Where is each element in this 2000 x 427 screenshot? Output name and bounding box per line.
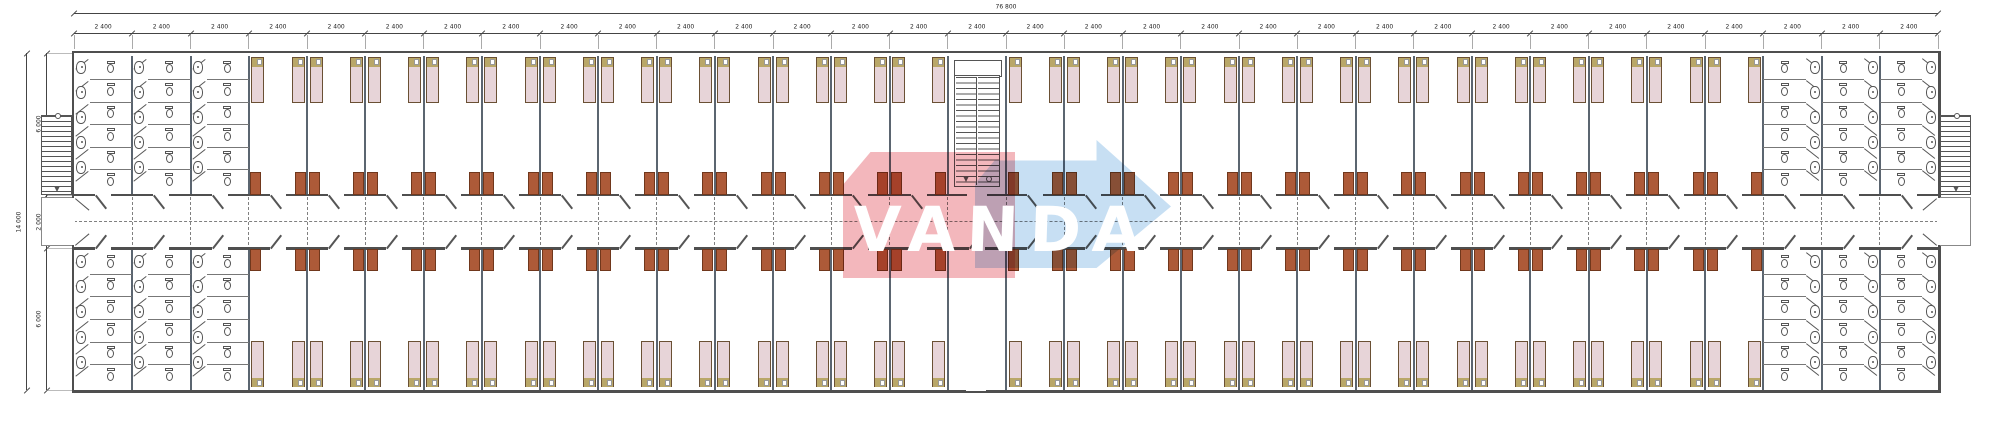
toilet-tank bbox=[1781, 255, 1789, 258]
room-door-leaf bbox=[386, 195, 398, 209]
toilet-tank bbox=[165, 128, 173, 131]
bed bbox=[1631, 57, 1644, 103]
stall-partition bbox=[148, 102, 190, 103]
stall-partition bbox=[90, 342, 132, 343]
sink bbox=[76, 61, 86, 74]
bed-pillow bbox=[1579, 59, 1584, 65]
toilet-tank bbox=[1897, 323, 1905, 326]
bed-headboard bbox=[584, 58, 595, 67]
dim-extension bbox=[1763, 35, 1764, 49]
bed-pillow bbox=[1539, 380, 1544, 386]
room-door-leaf bbox=[1901, 195, 1913, 209]
bed bbox=[543, 341, 556, 387]
stall-partition bbox=[1822, 124, 1864, 125]
sink-drain bbox=[139, 91, 141, 93]
bed-headboard bbox=[311, 58, 322, 67]
bed-headboard bbox=[1359, 58, 1370, 67]
toilet bbox=[165, 368, 174, 381]
bed bbox=[251, 341, 264, 387]
sink bbox=[76, 331, 86, 344]
stair-circle bbox=[1954, 113, 1960, 119]
wardrobe bbox=[1357, 172, 1368, 195]
toilet-tank bbox=[223, 173, 231, 176]
sink bbox=[1810, 86, 1820, 99]
sink-drain bbox=[1814, 66, 1816, 68]
wardrobe bbox=[1052, 249, 1063, 272]
sink bbox=[193, 331, 203, 344]
wardrobe bbox=[658, 172, 669, 195]
sink-drain bbox=[1814, 361, 1816, 363]
dim-extension bbox=[656, 35, 657, 49]
bed bbox=[1690, 341, 1703, 387]
stall-partition bbox=[1763, 124, 1805, 125]
toilet-bowl bbox=[1840, 281, 1847, 290]
sink-drain bbox=[197, 66, 199, 68]
stall-partition bbox=[90, 79, 132, 80]
stall-partition bbox=[1880, 342, 1922, 343]
bed-pillow bbox=[1055, 59, 1060, 65]
toilet-tank bbox=[223, 368, 231, 371]
sink-drain bbox=[197, 141, 199, 143]
stall-partition bbox=[148, 319, 190, 320]
entry-door-gap bbox=[1937, 198, 1941, 245]
toilet bbox=[1897, 61, 1906, 74]
toilet-bowl bbox=[224, 372, 231, 381]
toilet-bowl bbox=[1840, 327, 1847, 336]
stall-door bbox=[75, 321, 88, 332]
bed-headboard bbox=[1010, 378, 1021, 387]
toilet bbox=[1780, 173, 1789, 186]
bed bbox=[1416, 341, 1429, 387]
bed-pillow bbox=[1189, 380, 1194, 386]
toilet bbox=[1780, 83, 1789, 96]
stall-partition bbox=[207, 79, 249, 80]
bed-headboard bbox=[1301, 378, 1312, 387]
dim-label-module: 2 400 bbox=[968, 24, 985, 31]
toilet bbox=[106, 61, 115, 74]
toilet-tank bbox=[107, 368, 115, 371]
wardrobe bbox=[702, 249, 713, 272]
bed-pillow bbox=[1230, 380, 1235, 386]
toilet-tank bbox=[107, 300, 115, 303]
room-door-leaf bbox=[619, 195, 631, 209]
toilet-bowl bbox=[166, 87, 173, 96]
sink-drain bbox=[1931, 166, 1933, 168]
wardrobe bbox=[542, 172, 553, 195]
entry-door-leaf bbox=[75, 233, 89, 245]
wardrobe bbox=[367, 172, 378, 195]
bed-headboard bbox=[1341, 378, 1352, 387]
sink bbox=[1868, 61, 1878, 74]
wardrobe bbox=[644, 172, 655, 195]
bed-headboard bbox=[1534, 378, 1545, 387]
toilet bbox=[165, 128, 174, 141]
wardrobe bbox=[1124, 249, 1135, 272]
stall-partition bbox=[1763, 169, 1805, 170]
toilet-bowl bbox=[224, 327, 231, 336]
room-door-leaf bbox=[561, 195, 573, 209]
stall-door bbox=[1864, 125, 1877, 136]
bed bbox=[583, 57, 596, 103]
sink-drain bbox=[197, 91, 199, 93]
wardrobe bbox=[1285, 172, 1296, 195]
dim-label-module: 2 400 bbox=[328, 24, 345, 31]
corridor-module-dash bbox=[1297, 197, 1298, 245]
dim-extension bbox=[1064, 35, 1065, 49]
sink-drain bbox=[139, 141, 141, 143]
toilet bbox=[106, 83, 115, 96]
sink-drain bbox=[1931, 141, 1933, 143]
bed bbox=[1515, 57, 1528, 103]
toilet bbox=[223, 151, 232, 164]
toilet bbox=[106, 106, 115, 119]
wardrobe bbox=[295, 249, 306, 272]
room-door-gap bbox=[1318, 247, 1334, 251]
bed bbox=[1242, 341, 1255, 387]
toilet-bowl bbox=[1781, 281, 1788, 290]
dim-extension bbox=[1180, 35, 1181, 49]
bed-pillow bbox=[1346, 380, 1351, 386]
bed-headboard bbox=[1050, 378, 1061, 387]
bed-pillow bbox=[298, 59, 303, 65]
bed-pillow bbox=[432, 59, 437, 65]
wardrobe bbox=[1518, 249, 1529, 272]
sink bbox=[1810, 136, 1820, 149]
floor-plan-canvas: 76 8002 4002 4002 4002 4002 4002 4002 40… bbox=[0, 0, 2000, 427]
toilet-bowl bbox=[1840, 132, 1847, 141]
bed bbox=[717, 57, 730, 103]
wardrobe bbox=[1168, 172, 1179, 195]
dim-extension bbox=[831, 35, 832, 49]
stall-partition bbox=[90, 124, 132, 125]
sink bbox=[1868, 86, 1878, 99]
toilet bbox=[165, 106, 174, 119]
bed-pillow bbox=[549, 380, 554, 386]
stall-partition bbox=[207, 296, 249, 297]
corridor-module-dash bbox=[1646, 197, 1647, 245]
bed bbox=[408, 341, 421, 387]
wardrobe bbox=[1008, 172, 1019, 195]
toilet-bowl bbox=[1840, 349, 1847, 358]
dim-label-total-width: 76 800 bbox=[996, 4, 1017, 11]
bed-pillow bbox=[1131, 59, 1136, 65]
bed-headboard bbox=[369, 58, 380, 67]
bed-headboard bbox=[1225, 378, 1236, 387]
dim-extension bbox=[48, 390, 72, 391]
exterior-stair bbox=[1940, 115, 1971, 195]
stall-partition bbox=[90, 102, 132, 103]
bed-headboard bbox=[1417, 378, 1428, 387]
room-door-leaf bbox=[95, 195, 107, 209]
bed-headboard bbox=[1166, 378, 1177, 387]
bed bbox=[1224, 341, 1237, 387]
bed-pillow bbox=[1597, 380, 1602, 386]
bed-headboard bbox=[602, 58, 613, 67]
bed-headboard bbox=[293, 378, 304, 387]
bed-headboard bbox=[467, 58, 478, 67]
sink-drain bbox=[1872, 166, 1874, 168]
bed bbox=[1300, 341, 1313, 387]
bed-headboard bbox=[1050, 58, 1061, 67]
room-door-leaf bbox=[736, 195, 748, 209]
wardrobe bbox=[1124, 172, 1135, 195]
dim-extension bbox=[1821, 35, 1822, 49]
bed-pillow bbox=[647, 59, 652, 65]
wardrobe bbox=[1707, 249, 1718, 272]
wardrobe bbox=[877, 172, 888, 195]
toilet bbox=[223, 61, 232, 74]
stall-partition bbox=[1763, 274, 1805, 275]
bed bbox=[699, 57, 712, 103]
bed-headboard bbox=[1184, 378, 1195, 387]
stall-partition bbox=[1763, 102, 1805, 103]
toilet bbox=[165, 346, 174, 359]
bed-headboard bbox=[1691, 378, 1702, 387]
sink-drain bbox=[139, 166, 141, 168]
bed-headboard bbox=[1301, 58, 1312, 67]
bed bbox=[1165, 341, 1178, 387]
wardrobe bbox=[309, 249, 320, 272]
room-door-gap bbox=[967, 193, 987, 197]
bed-headboard bbox=[526, 378, 537, 387]
sink bbox=[1810, 61, 1820, 74]
sink-drain bbox=[1931, 311, 1933, 313]
dim-label-module: 2 400 bbox=[1609, 24, 1626, 31]
sink bbox=[134, 136, 144, 149]
sink bbox=[134, 61, 144, 74]
bed bbox=[641, 341, 654, 387]
sink-drain bbox=[197, 336, 199, 338]
bed bbox=[1125, 57, 1138, 103]
wardrobe bbox=[250, 249, 261, 272]
bed-pillow bbox=[1754, 59, 1759, 65]
toilet bbox=[106, 346, 115, 359]
toilet bbox=[1839, 83, 1848, 96]
bed bbox=[1457, 341, 1470, 387]
sink bbox=[134, 280, 144, 293]
toilet-tank bbox=[165, 323, 173, 326]
wardrobe bbox=[819, 172, 830, 195]
stall-partition bbox=[148, 342, 190, 343]
bed-pillow bbox=[1248, 59, 1253, 65]
bed-pillow bbox=[647, 380, 652, 386]
wardrobe bbox=[644, 249, 655, 272]
bed bbox=[1690, 57, 1703, 103]
corridor-module-dash bbox=[656, 197, 657, 245]
toilet bbox=[1780, 255, 1789, 268]
corridor-module-dash bbox=[248, 197, 249, 245]
bed-headboard bbox=[1574, 58, 1585, 67]
bed-headboard bbox=[427, 378, 438, 387]
bed-headboard bbox=[1534, 58, 1545, 67]
toilet-bowl bbox=[107, 327, 114, 336]
toilet bbox=[223, 83, 232, 96]
dim-label-module: 2 400 bbox=[561, 24, 578, 31]
toilet-bowl bbox=[224, 87, 231, 96]
bed-headboard bbox=[351, 378, 362, 387]
toilet-tank bbox=[1897, 173, 1905, 176]
bed-pillow bbox=[1597, 59, 1602, 65]
toilet-bowl bbox=[166, 327, 173, 336]
bed bbox=[1183, 341, 1196, 387]
wardrobe bbox=[1285, 249, 1296, 272]
toilet bbox=[1897, 83, 1906, 96]
stall-partition bbox=[1880, 296, 1922, 297]
wardrobe bbox=[1299, 249, 1310, 272]
wardrobe bbox=[367, 249, 378, 272]
bed bbox=[466, 341, 479, 387]
sink-drain bbox=[1872, 361, 1874, 363]
wardrobe bbox=[1052, 172, 1063, 195]
toilet bbox=[1780, 278, 1789, 291]
stall-partition bbox=[148, 147, 190, 148]
sink-drain bbox=[1814, 141, 1816, 143]
dim-label-module: 2 400 bbox=[1318, 24, 1335, 31]
wardrobe bbox=[353, 249, 364, 272]
wardrobe bbox=[1299, 172, 1310, 195]
bed bbox=[310, 341, 323, 387]
entry-porch bbox=[1940, 197, 1971, 246]
entry-door-leaf bbox=[1923, 233, 1937, 245]
wardrobe bbox=[1401, 249, 1412, 272]
stall-partition bbox=[148, 364, 190, 365]
corridor-module-dash bbox=[365, 197, 366, 245]
toilet bbox=[165, 278, 174, 291]
dim-tick bbox=[1935, 10, 1941, 16]
stall-partition bbox=[1822, 342, 1864, 343]
bed bbox=[1049, 341, 1062, 387]
bed-pillow bbox=[764, 59, 769, 65]
toilet-bowl bbox=[1898, 327, 1905, 336]
bed-headboard bbox=[602, 378, 613, 387]
bed bbox=[426, 57, 439, 103]
corridor-module-dash bbox=[1122, 197, 1123, 245]
dim-label-module: 2 400 bbox=[444, 24, 461, 31]
sink-drain bbox=[197, 116, 199, 118]
bed bbox=[1515, 341, 1528, 387]
toilet-tank bbox=[223, 300, 231, 303]
toilet-bowl bbox=[166, 109, 173, 118]
wardrobe bbox=[1460, 172, 1471, 195]
room-door-leaf bbox=[1318, 195, 1330, 209]
sink-drain bbox=[197, 261, 199, 263]
room-door-leaf bbox=[445, 195, 457, 209]
sink-drain bbox=[1814, 261, 1816, 263]
bed-pillow bbox=[938, 59, 943, 65]
sink bbox=[1810, 111, 1820, 124]
bed-headboard bbox=[1749, 378, 1760, 387]
room-door-leaf bbox=[503, 195, 515, 209]
stall-door bbox=[1806, 343, 1819, 354]
toilet-bowl bbox=[107, 304, 114, 313]
bed-headboard bbox=[777, 378, 788, 387]
stair-run bbox=[978, 77, 999, 185]
sink-drain bbox=[1814, 166, 1816, 168]
sink-drain bbox=[1814, 286, 1816, 288]
room-door-leaf bbox=[153, 195, 165, 209]
toilet bbox=[1839, 61, 1848, 74]
bed-pillow bbox=[356, 380, 361, 386]
bed-pillow bbox=[782, 59, 787, 65]
toilet-tank bbox=[107, 173, 115, 176]
corridor-module-dash bbox=[1006, 197, 1007, 245]
bed-headboard bbox=[1632, 378, 1643, 387]
bed bbox=[484, 57, 497, 103]
toilet-bowl bbox=[1781, 372, 1788, 381]
toilet-tank bbox=[223, 128, 231, 131]
bed bbox=[892, 57, 905, 103]
stall-partition bbox=[207, 364, 249, 365]
toilet bbox=[1780, 151, 1789, 164]
dim-label-module: 2 400 bbox=[211, 24, 228, 31]
bed bbox=[776, 57, 789, 103]
wardrobe bbox=[1751, 249, 1762, 272]
bed-pillow bbox=[1521, 380, 1526, 386]
bed-headboard bbox=[584, 378, 595, 387]
bed-headboard bbox=[660, 378, 671, 387]
sink bbox=[76, 136, 86, 149]
dim-extension bbox=[1239, 35, 1240, 49]
sink-drain bbox=[139, 66, 141, 68]
room-door-gap bbox=[619, 247, 635, 251]
dim-extension bbox=[365, 35, 366, 49]
toilet bbox=[1897, 151, 1906, 164]
toilet bbox=[1897, 323, 1906, 336]
wardrobe bbox=[1415, 249, 1426, 272]
corridor-module-dash bbox=[1180, 197, 1181, 245]
bed-pillow bbox=[822, 59, 827, 65]
dim-line-overall bbox=[74, 13, 1938, 14]
toilet bbox=[106, 151, 115, 164]
stall-door bbox=[1806, 320, 1819, 331]
corridor-module-dash bbox=[714, 197, 715, 245]
bed bbox=[892, 341, 905, 387]
bed-pillow bbox=[1055, 380, 1060, 386]
bed bbox=[1107, 57, 1120, 103]
bed-headboard bbox=[817, 378, 828, 387]
bed bbox=[543, 57, 556, 103]
sink bbox=[1868, 356, 1878, 369]
bed-pillow bbox=[490, 59, 495, 65]
stall-partition bbox=[1880, 364, 1922, 365]
bed bbox=[1067, 57, 1080, 103]
wardrobe bbox=[716, 249, 727, 272]
exterior-stair bbox=[41, 115, 72, 195]
bed-headboard bbox=[409, 58, 420, 67]
sink bbox=[1926, 161, 1936, 174]
sink-drain bbox=[1872, 116, 1874, 118]
stall-partition bbox=[1822, 147, 1864, 148]
bed-pillow bbox=[1539, 59, 1544, 65]
bed bbox=[525, 341, 538, 387]
toilet-tank bbox=[1897, 128, 1905, 131]
dim-extension bbox=[48, 53, 72, 54]
wardrobe bbox=[1590, 249, 1601, 272]
toilet-bowl bbox=[107, 177, 114, 186]
bed-headboard bbox=[351, 58, 362, 67]
toilet-tank bbox=[1839, 173, 1847, 176]
wardrobe bbox=[877, 249, 888, 272]
bed-pillow bbox=[898, 380, 903, 386]
stall-door bbox=[1864, 343, 1877, 354]
sink bbox=[193, 280, 203, 293]
bed-pillow bbox=[705, 380, 710, 386]
bed-pillow bbox=[1579, 380, 1584, 386]
bed bbox=[1049, 57, 1062, 103]
corridor-module-dash bbox=[1239, 197, 1240, 245]
bed-pillow bbox=[257, 59, 262, 65]
bed-pillow bbox=[665, 59, 670, 65]
